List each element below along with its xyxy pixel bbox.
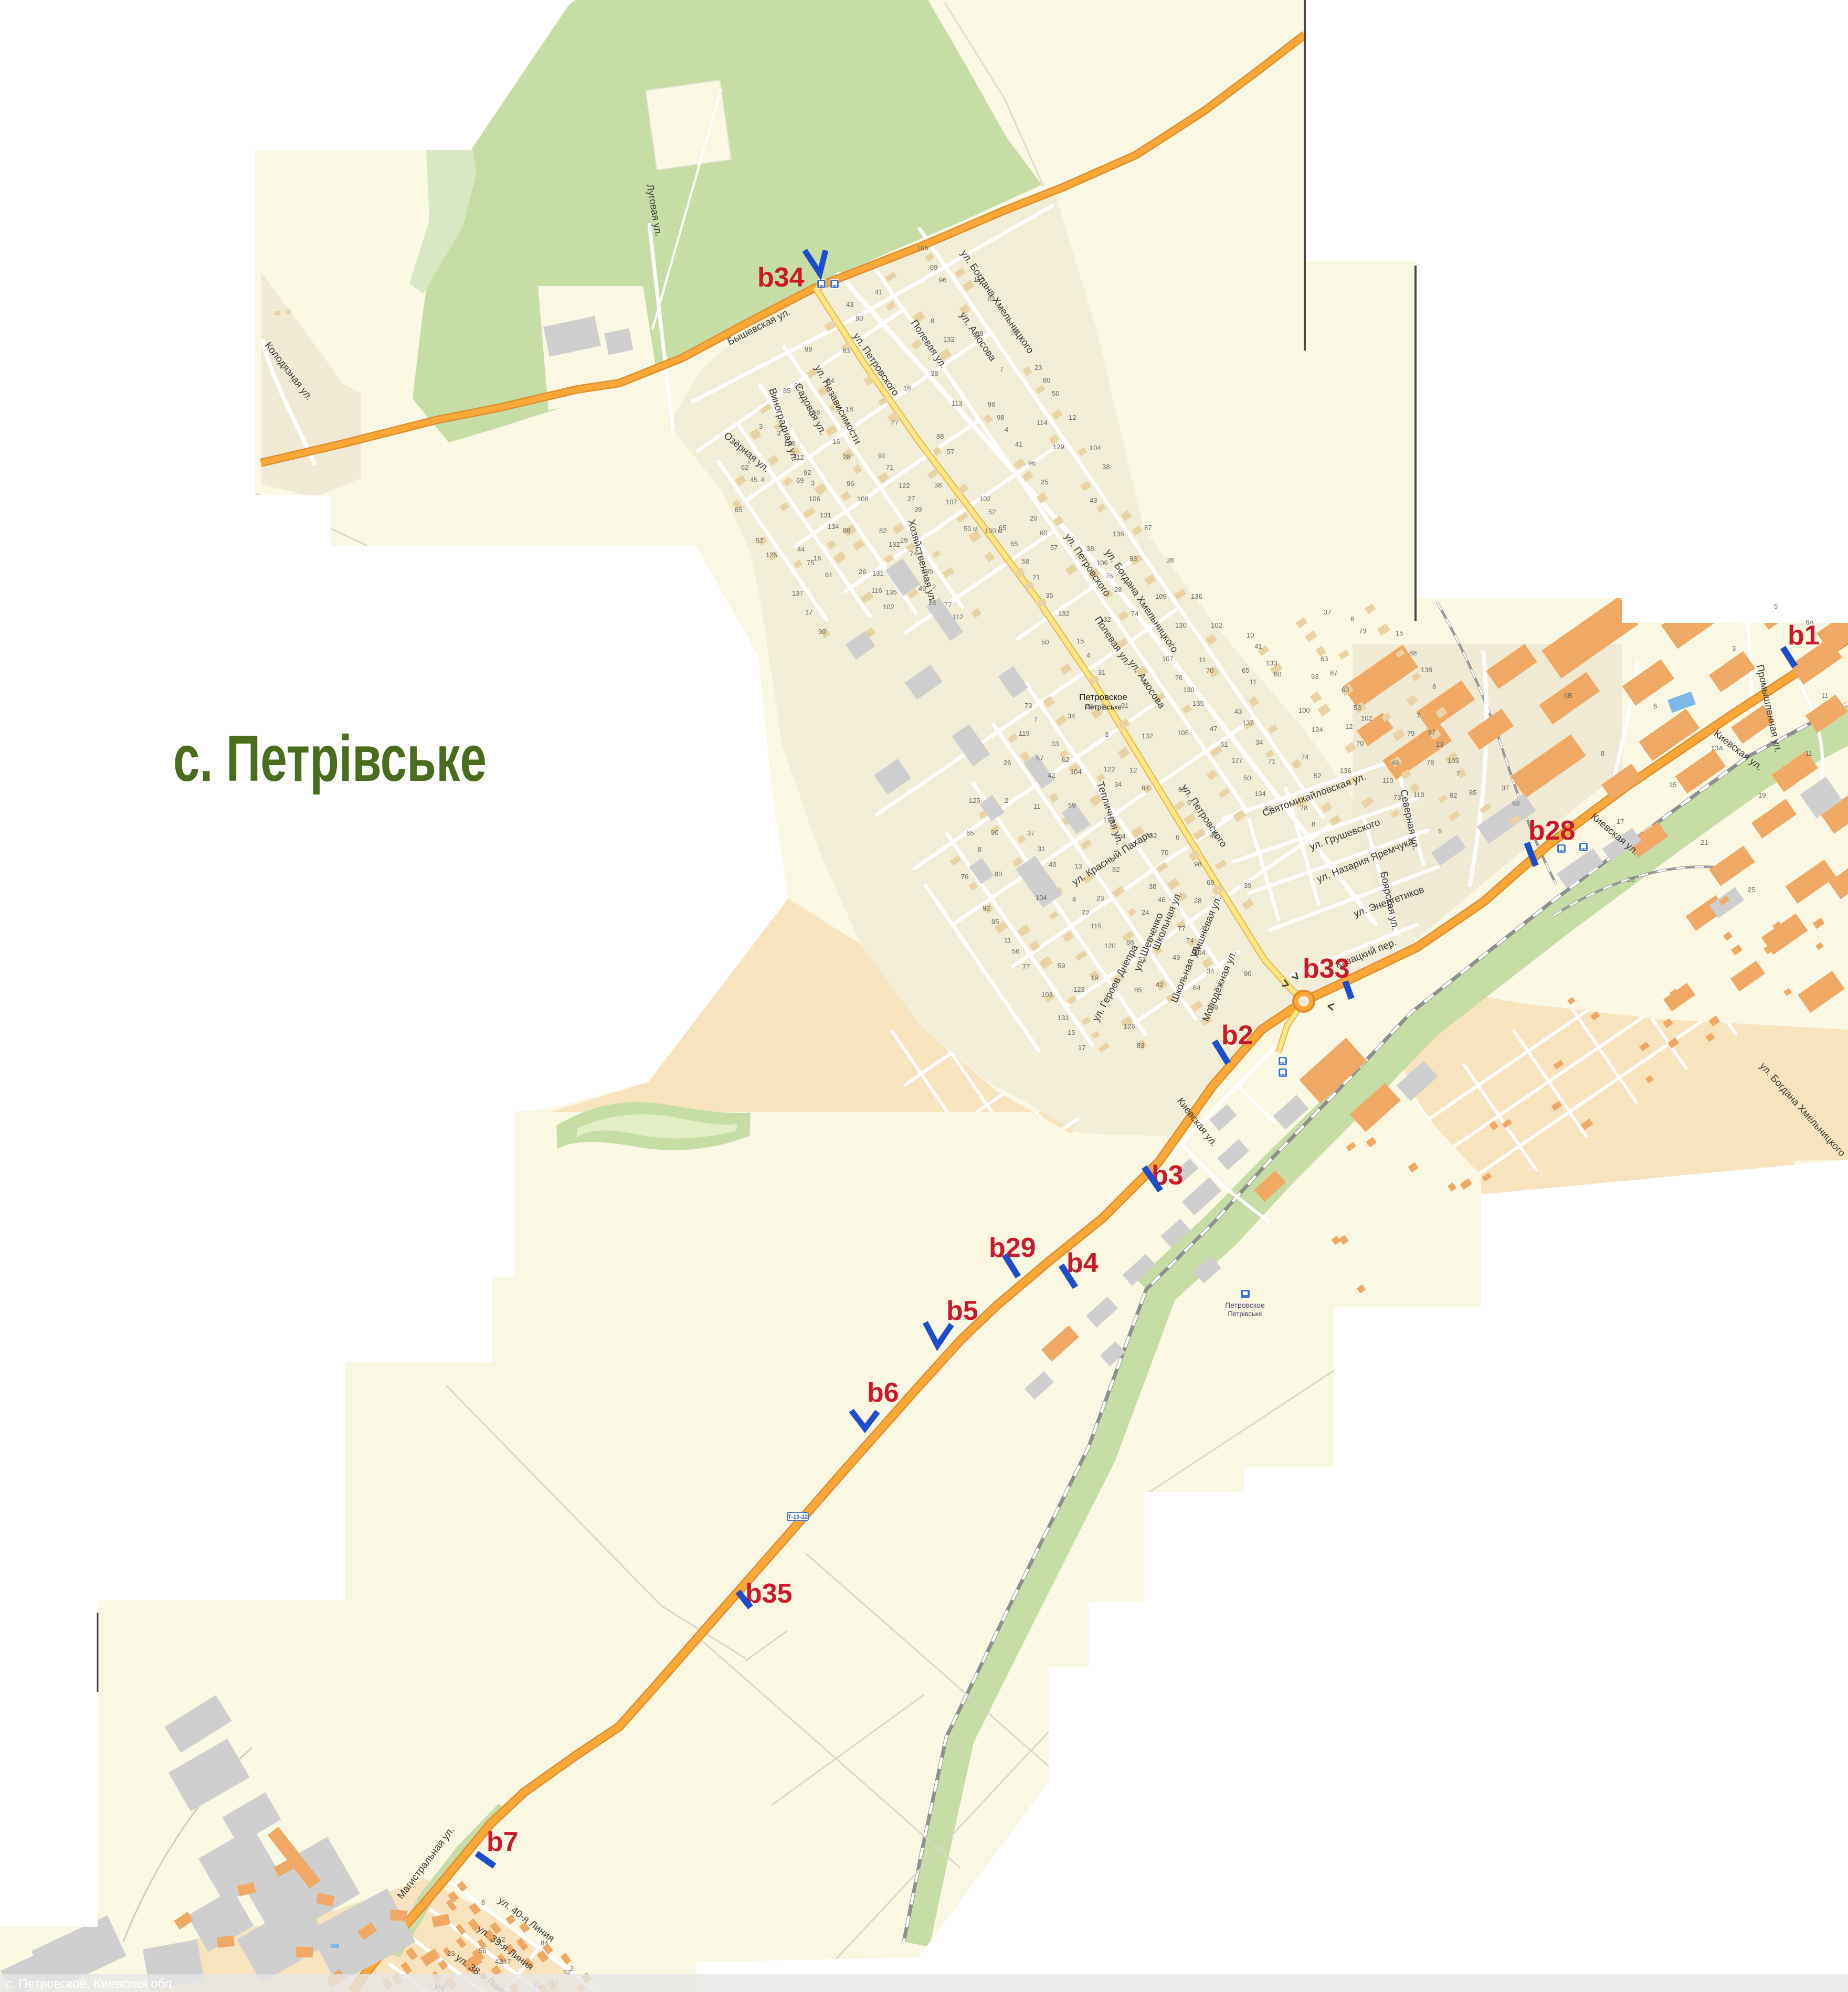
svg-text:5: 5 xyxy=(1774,602,1778,610)
svg-text:3: 3 xyxy=(811,479,815,487)
svg-text:109: 109 xyxy=(1155,592,1167,600)
svg-text:77: 77 xyxy=(1022,962,1030,970)
svg-text:23: 23 xyxy=(1627,875,1634,883)
svg-text:62: 62 xyxy=(741,463,748,471)
svg-text:72: 72 xyxy=(1082,909,1089,917)
svg-text:41: 41 xyxy=(1015,440,1022,448)
svg-text:130: 130 xyxy=(1175,621,1187,629)
svg-text:135: 135 xyxy=(1192,700,1204,707)
svg-text:b33: b33 xyxy=(1303,953,1350,984)
svg-text:132: 132 xyxy=(1100,616,1111,623)
svg-text:132: 132 xyxy=(1058,610,1070,618)
svg-text:3: 3 xyxy=(1105,730,1108,738)
svg-text:74: 74 xyxy=(910,550,917,558)
svg-text:15: 15 xyxy=(1669,781,1676,789)
svg-text:15: 15 xyxy=(1068,1029,1075,1036)
svg-text:29: 29 xyxy=(900,536,907,544)
svg-text:74: 74 xyxy=(1131,610,1138,618)
svg-text:96: 96 xyxy=(988,400,995,408)
svg-text:4: 4 xyxy=(1005,426,1008,433)
svg-text:50: 50 xyxy=(1243,774,1251,782)
svg-text:57: 57 xyxy=(1036,754,1043,762)
svg-text:90: 90 xyxy=(818,628,826,635)
svg-text:77: 77 xyxy=(891,418,899,426)
svg-text:43: 43 xyxy=(846,301,853,309)
svg-text:b29: b29 xyxy=(989,1233,1036,1263)
svg-text:106: 106 xyxy=(1096,559,1108,567)
svg-text:50: 50 xyxy=(1041,638,1049,646)
svg-text:59: 59 xyxy=(1068,801,1075,809)
svg-text:137: 137 xyxy=(792,589,804,597)
svg-text:91: 91 xyxy=(878,452,885,460)
svg-text:84: 84 xyxy=(827,377,834,385)
svg-text:b2: b2 xyxy=(1221,1020,1253,1051)
svg-text:91: 91 xyxy=(1121,702,1128,709)
svg-text:70: 70 xyxy=(1161,849,1168,856)
svg-text:134: 134 xyxy=(1254,790,1266,798)
svg-text:83: 83 xyxy=(1129,555,1137,563)
svg-text:8: 8 xyxy=(1432,683,1436,691)
svg-text:80: 80 xyxy=(995,870,1002,878)
svg-text:106: 106 xyxy=(809,495,820,503)
svg-text:61: 61 xyxy=(825,571,832,579)
svg-text:129: 129 xyxy=(1053,443,1064,451)
svg-text:6: 6 xyxy=(1350,615,1354,623)
svg-text:56: 56 xyxy=(812,408,820,416)
svg-text:75: 75 xyxy=(807,559,814,567)
svg-text:51: 51 xyxy=(1220,740,1228,748)
svg-text:6: 6 xyxy=(1176,833,1179,841)
svg-text:41: 41 xyxy=(1254,642,1262,650)
svg-text:8: 8 xyxy=(1312,820,1315,828)
svg-text:3: 3 xyxy=(759,422,763,430)
svg-text:87: 87 xyxy=(1144,524,1152,532)
svg-text:23: 23 xyxy=(1096,894,1104,902)
svg-text:57: 57 xyxy=(756,537,763,545)
svg-text:83: 83 xyxy=(1137,1042,1144,1050)
svg-text:49: 49 xyxy=(918,585,926,592)
svg-text:115: 115 xyxy=(974,276,985,283)
svg-text:8: 8 xyxy=(481,1899,485,1906)
svg-text:23: 23 xyxy=(1436,740,1443,748)
svg-text:60: 60 xyxy=(1040,529,1047,537)
svg-text:b35: b35 xyxy=(745,1578,793,1609)
svg-text:33: 33 xyxy=(1051,740,1059,748)
svg-text:96: 96 xyxy=(1028,459,1036,467)
svg-text:13: 13 xyxy=(1074,862,1082,870)
svg-text:49: 49 xyxy=(1173,953,1180,961)
svg-text:108: 108 xyxy=(857,495,869,503)
svg-text:107: 107 xyxy=(946,498,957,506)
svg-text:8: 8 xyxy=(1601,749,1604,757)
svg-text:21: 21 xyxy=(1032,573,1040,581)
svg-text:102: 102 xyxy=(883,603,894,611)
svg-text:115: 115 xyxy=(1091,922,1102,930)
svg-text:80: 80 xyxy=(1274,670,1281,678)
svg-text:26: 26 xyxy=(1004,759,1011,767)
svg-text:82: 82 xyxy=(1112,865,1120,873)
svg-text:63: 63 xyxy=(1342,686,1349,694)
svg-text:38: 38 xyxy=(1149,883,1156,891)
svg-text:4: 4 xyxy=(761,476,764,484)
svg-text:76: 76 xyxy=(1105,572,1113,580)
svg-text:63: 63 xyxy=(1321,655,1328,663)
svg-text:38: 38 xyxy=(1166,556,1174,564)
svg-text:136: 136 xyxy=(1191,592,1202,600)
svg-text:20: 20 xyxy=(1030,514,1037,522)
svg-text:43: 43 xyxy=(1234,707,1242,715)
svg-text:132: 132 xyxy=(889,541,900,548)
svg-text:50: 50 xyxy=(1052,389,1059,397)
svg-text:34: 34 xyxy=(1255,738,1263,746)
svg-text:138: 138 xyxy=(1421,666,1432,674)
svg-text:125: 125 xyxy=(766,551,777,559)
svg-text:48: 48 xyxy=(1210,832,1217,840)
svg-text:122: 122 xyxy=(1104,765,1115,773)
svg-text:41: 41 xyxy=(875,288,882,296)
svg-text:104: 104 xyxy=(1070,768,1082,776)
svg-text:8: 8 xyxy=(931,317,934,325)
svg-text:7: 7 xyxy=(1000,365,1004,373)
svg-text:с. Петрівське: с. Петрівське xyxy=(173,723,487,795)
svg-text:39: 39 xyxy=(1244,882,1251,889)
svg-text:76: 76 xyxy=(961,873,968,881)
svg-text:11: 11 xyxy=(1004,936,1011,944)
svg-text:71: 71 xyxy=(1268,757,1275,765)
svg-text:131: 131 xyxy=(820,511,831,519)
svg-text:17: 17 xyxy=(1617,818,1624,825)
svg-text:23: 23 xyxy=(1034,364,1042,372)
svg-text:28: 28 xyxy=(1010,329,1018,337)
svg-text:4: 4 xyxy=(1086,651,1090,659)
svg-text:84: 84 xyxy=(541,1939,548,1947)
svg-text:b34: b34 xyxy=(757,262,805,293)
svg-text:37: 37 xyxy=(1502,784,1509,792)
svg-text:34: 34 xyxy=(1207,967,1214,975)
svg-text:104: 104 xyxy=(1114,832,1126,840)
svg-text:13А: 13А xyxy=(1711,744,1723,752)
svg-text:69: 69 xyxy=(930,263,937,271)
svg-text:6: 6 xyxy=(1438,827,1442,835)
svg-text:27: 27 xyxy=(907,495,915,503)
svg-text:с. Петровское, Киевская обл.: с. Петровское, Киевская обл. xyxy=(5,1977,175,1991)
svg-text:Петровское: Петровское xyxy=(1079,692,1127,702)
svg-text:87: 87 xyxy=(1428,728,1435,736)
svg-text:69: 69 xyxy=(1207,878,1214,886)
svg-text:125: 125 xyxy=(969,797,980,804)
svg-text:79: 79 xyxy=(1407,729,1414,737)
svg-text:49: 49 xyxy=(1391,759,1399,767)
svg-text:7: 7 xyxy=(1456,769,1460,777)
svg-text:26: 26 xyxy=(859,568,866,576)
svg-text:133: 133 xyxy=(1266,659,1277,667)
svg-text:59: 59 xyxy=(1058,962,1065,970)
svg-text:113: 113 xyxy=(1103,816,1114,824)
svg-text:42: 42 xyxy=(1048,771,1055,779)
svg-text:98: 98 xyxy=(1194,860,1201,868)
svg-text:128: 128 xyxy=(784,440,795,448)
svg-text:76: 76 xyxy=(1175,674,1182,682)
svg-text:85: 85 xyxy=(783,387,790,395)
svg-text:Петровское: Петровское xyxy=(1225,1301,1265,1309)
svg-text:134: 134 xyxy=(828,523,839,531)
svg-text:105: 105 xyxy=(917,244,928,252)
svg-text:34: 34 xyxy=(1114,780,1122,788)
svg-text:Петрівське: Петрівське xyxy=(1085,703,1122,711)
svg-text:74: 74 xyxy=(1186,937,1194,945)
svg-text:105: 105 xyxy=(1177,729,1189,737)
svg-text:34: 34 xyxy=(1068,712,1075,720)
svg-text:b5: b5 xyxy=(946,1296,978,1326)
svg-text:Т-10-12: Т-10-12 xyxy=(788,1514,808,1520)
svg-text:63: 63 xyxy=(987,295,995,303)
svg-text:31: 31 xyxy=(1098,669,1105,676)
svg-text:24: 24 xyxy=(1142,908,1149,916)
svg-text:90: 90 xyxy=(856,314,863,322)
svg-text:73: 73 xyxy=(1359,627,1366,635)
svg-text:50 м: 50 м xyxy=(964,525,978,533)
svg-text:88: 88 xyxy=(1409,649,1417,657)
svg-text:25: 25 xyxy=(1748,886,1755,894)
svg-text:73: 73 xyxy=(1025,702,1032,709)
svg-text:87: 87 xyxy=(1330,669,1337,677)
svg-text:b1: b1 xyxy=(1788,620,1820,651)
svg-text:65: 65 xyxy=(1010,540,1018,548)
svg-text:11: 11 xyxy=(1250,678,1257,686)
svg-text:44: 44 xyxy=(797,545,805,553)
svg-text:88: 88 xyxy=(843,526,850,534)
svg-text:8: 8 xyxy=(978,845,981,853)
svg-text:92: 92 xyxy=(983,904,990,912)
svg-text:Петрівське: Петрівське xyxy=(1228,1310,1262,1318)
svg-text:116: 116 xyxy=(871,587,882,595)
svg-text:73: 73 xyxy=(1393,793,1401,801)
svg-text:112: 112 xyxy=(953,613,964,621)
svg-text:62: 62 xyxy=(1062,756,1069,764)
svg-text:12: 12 xyxy=(498,1935,505,1943)
svg-text:99: 99 xyxy=(805,345,812,353)
svg-text:40: 40 xyxy=(1049,861,1056,868)
svg-text:42: 42 xyxy=(1156,981,1163,989)
svg-text:37: 37 xyxy=(1324,608,1331,616)
svg-text:38: 38 xyxy=(1102,463,1110,471)
svg-text:11: 11 xyxy=(1821,692,1829,700)
svg-text:135: 135 xyxy=(885,588,897,596)
svg-text:7: 7 xyxy=(1417,712,1420,719)
svg-text:18: 18 xyxy=(846,405,853,413)
svg-text:69: 69 xyxy=(796,476,804,484)
svg-text:28: 28 xyxy=(843,453,850,461)
svg-text:46: 46 xyxy=(1158,896,1165,904)
svg-text:132: 132 xyxy=(943,335,955,343)
svg-text:104: 104 xyxy=(1194,949,1206,957)
svg-text:47: 47 xyxy=(1210,725,1217,733)
svg-text:78: 78 xyxy=(1427,758,1434,766)
svg-text:71: 71 xyxy=(886,463,893,471)
svg-text:21: 21 xyxy=(1701,839,1708,846)
svg-text:7: 7 xyxy=(1034,715,1038,723)
svg-text:98: 98 xyxy=(976,330,983,337)
svg-text:43: 43 xyxy=(1090,496,1097,504)
svg-text:52: 52 xyxy=(1314,772,1321,780)
svg-text:32: 32 xyxy=(1149,832,1157,840)
svg-text:84: 84 xyxy=(1142,784,1149,792)
svg-text:98: 98 xyxy=(997,414,1004,421)
svg-text:57: 57 xyxy=(947,448,954,455)
svg-text:17: 17 xyxy=(1078,1044,1085,1052)
svg-text:63: 63 xyxy=(1178,786,1186,793)
svg-text:102: 102 xyxy=(979,495,991,503)
svg-text:28: 28 xyxy=(1194,897,1201,905)
svg-text:85: 85 xyxy=(1469,789,1476,797)
svg-text:b4: b4 xyxy=(1066,1248,1099,1278)
svg-text:42: 42 xyxy=(495,1957,502,1965)
svg-text:19: 19 xyxy=(1758,791,1766,799)
svg-text:135: 135 xyxy=(1113,530,1124,538)
svg-text:112: 112 xyxy=(793,453,804,461)
svg-text:35: 35 xyxy=(1046,591,1053,599)
svg-text:28: 28 xyxy=(1114,586,1122,594)
svg-text:103: 103 xyxy=(1041,991,1053,999)
svg-text:10: 10 xyxy=(1247,631,1254,639)
svg-text:2: 2 xyxy=(1005,797,1008,804)
svg-text:b7: b7 xyxy=(487,1827,519,1857)
svg-text:85: 85 xyxy=(1134,986,1142,994)
svg-text:107: 107 xyxy=(1162,655,1174,663)
svg-text:38: 38 xyxy=(934,481,942,489)
svg-text:106: 106 xyxy=(1207,1003,1218,1011)
svg-text:100: 100 xyxy=(1298,706,1310,714)
svg-text:6: 6 xyxy=(1653,702,1657,710)
svg-text:88: 88 xyxy=(936,432,944,440)
svg-text:28: 28 xyxy=(928,599,936,607)
svg-text:123: 123 xyxy=(1073,986,1085,993)
svg-text:b28: b28 xyxy=(1528,815,1576,846)
svg-text:23: 23 xyxy=(447,1949,455,1957)
svg-text:16: 16 xyxy=(832,438,840,446)
svg-text:45: 45 xyxy=(750,476,757,484)
svg-text:92: 92 xyxy=(804,469,811,476)
svg-text:95: 95 xyxy=(991,918,999,926)
svg-text:96: 96 xyxy=(939,276,946,284)
svg-text:53: 53 xyxy=(1354,704,1361,712)
svg-text:16: 16 xyxy=(814,554,821,562)
svg-text:91: 91 xyxy=(794,382,801,389)
svg-text:90: 90 xyxy=(991,829,998,836)
svg-text:93: 93 xyxy=(1311,673,1318,681)
svg-text:110: 110 xyxy=(1382,777,1393,785)
svg-text:113: 113 xyxy=(952,399,963,407)
svg-text:16: 16 xyxy=(903,384,911,392)
svg-text:25: 25 xyxy=(1041,478,1048,486)
svg-text:82: 82 xyxy=(1450,791,1457,799)
svg-text:b6: b6 xyxy=(867,1378,899,1408)
svg-text:6: 6 xyxy=(1187,799,1191,807)
svg-text:88: 88 xyxy=(1126,938,1134,946)
svg-text:39: 39 xyxy=(914,505,922,513)
svg-text:102: 102 xyxy=(1361,714,1372,722)
svg-text:89: 89 xyxy=(1264,804,1272,812)
svg-text:90: 90 xyxy=(1244,970,1251,978)
svg-text:58: 58 xyxy=(1022,557,1029,565)
svg-text:131: 131 xyxy=(872,569,884,577)
svg-text:15: 15 xyxy=(1396,629,1403,637)
svg-text:65: 65 xyxy=(966,829,974,837)
svg-text:11: 11 xyxy=(1805,749,1813,757)
svg-text:15: 15 xyxy=(1076,637,1084,645)
svg-text:11: 11 xyxy=(1199,656,1206,664)
svg-text:12: 12 xyxy=(1345,723,1353,730)
svg-text:57: 57 xyxy=(1050,544,1058,552)
svg-text:137: 137 xyxy=(1242,719,1254,727)
svg-text:17: 17 xyxy=(805,608,812,616)
svg-text:3: 3 xyxy=(777,429,780,437)
svg-text:131: 131 xyxy=(1058,1014,1069,1022)
svg-text:38: 38 xyxy=(1086,545,1094,553)
svg-text:102: 102 xyxy=(1211,621,1222,629)
svg-text:74: 74 xyxy=(1301,753,1308,761)
svg-text:12: 12 xyxy=(1129,766,1137,774)
svg-text:2: 2 xyxy=(932,583,936,591)
svg-text:11: 11 xyxy=(1033,802,1041,810)
svg-text:96: 96 xyxy=(847,480,854,488)
svg-text:4: 4 xyxy=(1072,895,1076,903)
svg-text:100 м: 100 м xyxy=(985,527,1002,535)
svg-text:122: 122 xyxy=(899,482,910,490)
svg-text:52: 52 xyxy=(988,508,996,516)
svg-text:3: 3 xyxy=(1732,644,1736,652)
svg-text:114: 114 xyxy=(1037,419,1048,427)
svg-text:120: 120 xyxy=(1104,942,1116,950)
svg-text:136: 136 xyxy=(1340,767,1351,775)
svg-text:82: 82 xyxy=(879,527,886,535)
svg-text:12: 12 xyxy=(1069,414,1076,421)
svg-text:104: 104 xyxy=(1036,894,1047,902)
svg-text:38: 38 xyxy=(931,369,938,377)
svg-text:78: 78 xyxy=(1300,804,1307,812)
svg-text:135: 135 xyxy=(922,567,933,575)
svg-text:64: 64 xyxy=(1193,984,1200,992)
svg-text:19: 19 xyxy=(1091,974,1098,982)
svg-text:130: 130 xyxy=(1183,686,1195,694)
svg-text:65: 65 xyxy=(735,506,742,514)
svg-text:103: 103 xyxy=(1448,757,1459,765)
svg-text:65: 65 xyxy=(1242,666,1249,674)
svg-text:70: 70 xyxy=(1206,666,1213,674)
svg-text:104: 104 xyxy=(1090,444,1101,452)
svg-text:77: 77 xyxy=(944,601,952,609)
svg-text:119: 119 xyxy=(1019,729,1030,737)
svg-text:6В: 6В xyxy=(1564,692,1572,700)
svg-text:126: 126 xyxy=(1124,1022,1135,1030)
svg-text:53: 53 xyxy=(1138,956,1146,963)
svg-text:83: 83 xyxy=(842,347,850,355)
svg-text:110: 110 xyxy=(1413,791,1424,799)
svg-text:56: 56 xyxy=(1012,947,1019,955)
svg-text:124: 124 xyxy=(1312,726,1323,734)
svg-text:80: 80 xyxy=(1043,376,1050,384)
svg-text:56: 56 xyxy=(479,1947,486,1955)
svg-text:37: 37 xyxy=(1027,829,1034,837)
svg-text:77: 77 xyxy=(1178,925,1185,933)
svg-text:132: 132 xyxy=(1142,732,1153,740)
svg-text:93: 93 xyxy=(1512,799,1519,807)
svg-text:31: 31 xyxy=(1038,845,1045,853)
svg-text:127: 127 xyxy=(1231,756,1243,764)
svg-text:70: 70 xyxy=(1356,739,1364,747)
